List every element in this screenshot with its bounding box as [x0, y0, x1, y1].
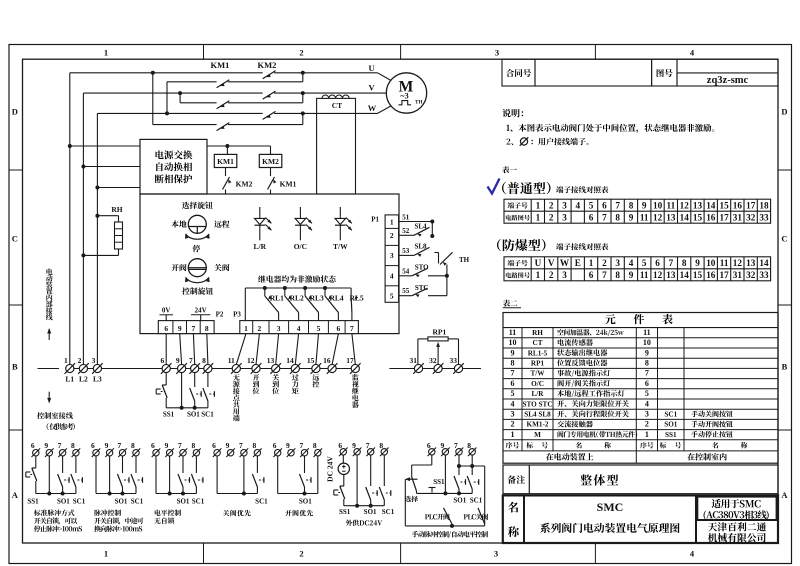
svg-text:1: 1 [536, 212, 541, 222]
svg-text:U: U [535, 258, 542, 268]
svg-text:13: 13 [666, 270, 676, 280]
svg-text:7: 7 [454, 441, 458, 450]
svg-text:4: 4 [297, 324, 301, 333]
svg-text:6: 6 [273, 441, 277, 450]
svg-text:SO1: SO1 [115, 498, 128, 506]
svg-text:CT: CT [332, 101, 342, 110]
svg-text:RL1: RL1 [270, 294, 284, 303]
svg-text:9: 9 [511, 348, 515, 357]
svg-text:15: 15 [720, 200, 730, 210]
svg-text:3: 3 [562, 200, 567, 210]
svg-text:17: 17 [720, 270, 730, 280]
svg-text:SS1: SS1 [433, 478, 445, 486]
svg-text:51: 51 [402, 213, 410, 221]
svg-text:3: 3 [562, 270, 567, 280]
svg-text:6: 6 [151, 441, 155, 450]
svg-text:SC1: SC1 [255, 498, 268, 506]
svg-text:6: 6 [645, 379, 649, 388]
svg-text:RL3: RL3 [310, 294, 324, 303]
svg-text:8: 8 [467, 441, 471, 450]
svg-text:12: 12 [733, 258, 743, 268]
svg-text:1: 1 [645, 430, 649, 439]
svg-text:7: 7 [239, 441, 243, 450]
svg-text:zq3z-smc: zq3z-smc [707, 75, 749, 86]
svg-text:SMC: SMC [597, 500, 624, 514]
svg-text:33: 33 [759, 270, 769, 280]
svg-text:SC1: SC1 [201, 411, 214, 419]
svg-text:3: 3 [92, 356, 96, 365]
svg-text:2: 2 [258, 324, 262, 333]
svg-text:32: 32 [746, 212, 756, 222]
svg-text:6: 6 [511, 379, 515, 388]
svg-text:7: 7 [645, 369, 649, 378]
svg-text:O/C: O/C [294, 242, 307, 251]
svg-text:8: 8 [131, 441, 135, 450]
svg-text:STO: STO [415, 264, 429, 272]
svg-text:V: V [369, 83, 376, 93]
svg-text:6: 6 [589, 270, 594, 280]
svg-text:12: 12 [653, 270, 663, 280]
svg-text:3: 3 [645, 410, 649, 419]
svg-text:W: W [368, 103, 377, 113]
svg-text:P2: P2 [216, 311, 224, 319]
svg-text:DC 24V: DC 24V [326, 456, 335, 482]
svg-text:9: 9 [645, 348, 649, 357]
svg-text:W: W [560, 258, 570, 268]
svg-text:SO1: SO1 [177, 498, 190, 506]
svg-text:9: 9 [629, 270, 634, 280]
svg-text:1: 1 [104, 549, 108, 559]
svg-text:52: 52 [402, 227, 410, 235]
svg-text:SS1: SS1 [339, 508, 351, 516]
svg-text:RL4: RL4 [330, 294, 344, 303]
svg-text:SO1: SO1 [364, 508, 377, 516]
svg-text:2: 2 [549, 200, 554, 210]
svg-text:18: 18 [759, 200, 769, 210]
svg-text:1: 1 [104, 48, 108, 58]
svg-text:RL2: RL2 [290, 294, 304, 303]
svg-text:7: 7 [192, 324, 196, 333]
svg-text:KM2: KM2 [258, 60, 277, 70]
svg-text:0V: 0V [162, 307, 171, 315]
svg-text:16: 16 [323, 356, 331, 365]
svg-text:B: B [782, 362, 788, 372]
svg-text:8: 8 [71, 441, 75, 450]
svg-text:D: D [781, 107, 787, 117]
svg-text:7: 7 [669, 258, 674, 268]
svg-text:6: 6 [212, 441, 216, 450]
svg-text:6: 6 [589, 212, 594, 222]
svg-text:11: 11 [640, 270, 649, 280]
svg-text:15: 15 [693, 270, 703, 280]
svg-text:12: 12 [653, 212, 663, 222]
svg-text:KM1: KM1 [280, 180, 297, 189]
svg-text:RL5: RL5 [350, 294, 364, 303]
svg-text:2: 2 [390, 231, 394, 240]
svg-text:2: 2 [299, 48, 303, 58]
svg-text:6: 6 [338, 441, 342, 450]
svg-text:STO STC: STO STC [522, 400, 552, 408]
svg-text:8: 8 [191, 441, 195, 450]
svg-text:24V: 24V [195, 307, 207, 315]
svg-text:8: 8 [511, 359, 515, 368]
svg-text:U: U [369, 63, 375, 73]
svg-text:6: 6 [427, 441, 431, 450]
svg-text:SC1: SC1 [73, 498, 86, 506]
svg-text:SO1: SO1 [664, 421, 678, 429]
svg-text:1: 1 [536, 200, 541, 210]
svg-text:P3: P3 [233, 311, 241, 319]
svg-text:3: 3 [615, 258, 620, 268]
svg-text:13: 13 [666, 212, 676, 222]
svg-text:L/R: L/R [254, 242, 267, 251]
svg-text:SC1: SC1 [664, 411, 677, 419]
svg-text:17: 17 [346, 356, 354, 365]
svg-text:17: 17 [746, 200, 756, 210]
svg-text:7: 7 [178, 441, 182, 450]
svg-text:16: 16 [733, 200, 743, 210]
svg-text:L2: L2 [79, 375, 88, 384]
svg-text:16: 16 [706, 212, 716, 222]
svg-text:8: 8 [615, 212, 620, 222]
svg-text:2: 2 [645, 420, 649, 429]
svg-text:31: 31 [733, 270, 743, 280]
svg-text:8: 8 [202, 356, 206, 365]
svg-text:SC1: SC1 [470, 496, 483, 504]
svg-text:11: 11 [228, 356, 235, 365]
svg-text:SO1: SO1 [299, 498, 312, 506]
svg-text:13: 13 [267, 356, 275, 365]
svg-text:1: 1 [244, 324, 248, 333]
svg-text:9: 9 [352, 441, 356, 450]
svg-text:1: 1 [64, 356, 68, 365]
svg-text:32: 32 [429, 356, 437, 365]
svg-text:5: 5 [642, 258, 647, 268]
svg-text:RH: RH [532, 329, 543, 337]
svg-text:6: 6 [337, 324, 341, 333]
svg-text:5: 5 [390, 292, 394, 301]
svg-text:3: 3 [511, 410, 515, 419]
svg-text:A: A [781, 490, 788, 500]
svg-text:V: V [548, 258, 555, 268]
svg-text:C: C [781, 234, 787, 244]
svg-text:1: 1 [589, 258, 594, 268]
svg-text:10: 10 [643, 338, 651, 347]
svg-text:E: E [575, 258, 581, 268]
svg-text:7: 7 [615, 200, 620, 210]
svg-text:9: 9 [176, 356, 180, 365]
svg-text:SO1: SO1 [453, 496, 466, 504]
svg-text:4: 4 [511, 399, 515, 408]
svg-text:KM1: KM1 [211, 60, 230, 70]
svg-text:8: 8 [615, 270, 620, 280]
svg-text:SC1: SC1 [382, 508, 395, 516]
svg-text:9: 9 [642, 200, 647, 210]
svg-text:32: 32 [746, 270, 756, 280]
svg-text:9: 9 [178, 324, 182, 333]
svg-text:6: 6 [655, 258, 660, 268]
svg-text:3: 3 [390, 251, 394, 260]
svg-text:6: 6 [160, 356, 164, 365]
svg-text:P1: P1 [371, 216, 379, 224]
svg-text:11: 11 [509, 328, 517, 337]
svg-text:10: 10 [706, 258, 716, 268]
svg-text:33: 33 [759, 212, 769, 222]
svg-text:TH: TH [415, 100, 423, 106]
svg-text:SS1: SS1 [665, 431, 677, 439]
svg-text:1: 1 [511, 430, 515, 439]
svg-text:14: 14 [286, 356, 294, 365]
svg-text:SO1: SO1 [187, 411, 200, 419]
svg-text:KM1: KM1 [217, 157, 234, 166]
svg-text:2: 2 [602, 258, 607, 268]
svg-text:4: 4 [629, 258, 634, 268]
svg-text:8: 8 [682, 258, 687, 268]
svg-text:6: 6 [164, 324, 168, 333]
svg-text:12: 12 [680, 200, 690, 210]
svg-text:9: 9 [105, 441, 109, 450]
svg-text:8: 8 [313, 441, 317, 450]
svg-text:5: 5 [511, 389, 515, 398]
svg-text:13: 13 [746, 258, 756, 268]
svg-text:1: 1 [536, 270, 541, 280]
svg-text:2: 2 [299, 549, 303, 559]
svg-text:14: 14 [680, 212, 690, 222]
svg-text:5: 5 [645, 389, 649, 398]
svg-text:4: 4 [390, 272, 394, 281]
svg-text:15: 15 [307, 356, 315, 365]
svg-text:7: 7 [602, 212, 607, 222]
svg-text:3: 3 [495, 48, 499, 58]
svg-text:2: 2 [78, 356, 82, 365]
svg-text:2: 2 [549, 270, 554, 280]
svg-text:8: 8 [205, 324, 209, 333]
svg-text:11: 11 [640, 212, 649, 222]
svg-text:T/W: T/W [531, 370, 546, 378]
svg-text:KM2: KM2 [236, 180, 253, 189]
svg-text:6: 6 [91, 441, 95, 450]
svg-text:~3: ~3 [400, 92, 408, 101]
svg-text:9: 9 [165, 441, 169, 450]
svg-text:A: A [12, 490, 19, 500]
svg-text:8: 8 [379, 441, 383, 450]
svg-text:2: 2 [511, 420, 515, 429]
svg-text:14: 14 [706, 200, 716, 210]
svg-text:5: 5 [317, 324, 321, 333]
svg-text:12: 12 [247, 356, 255, 365]
svg-text:SO1: SO1 [57, 498, 70, 506]
svg-text:3: 3 [494, 549, 498, 559]
svg-text:4: 4 [576, 200, 581, 210]
svg-text:14: 14 [759, 258, 769, 268]
svg-text:7: 7 [511, 369, 515, 378]
svg-text:L3: L3 [93, 375, 102, 384]
svg-text:6: 6 [31, 441, 35, 450]
svg-text:7: 7 [118, 441, 122, 450]
svg-text:KM2: KM2 [262, 157, 279, 166]
svg-text:15: 15 [693, 212, 703, 222]
svg-text:3: 3 [562, 212, 567, 222]
svg-text:RH: RH [111, 205, 122, 214]
svg-text:SS1: SS1 [27, 498, 39, 506]
svg-text:CT: CT [533, 339, 543, 347]
svg-text:SS1: SS1 [163, 411, 175, 419]
svg-text:7: 7 [350, 324, 354, 333]
svg-text:7: 7 [58, 441, 62, 450]
svg-text:16: 16 [706, 270, 716, 280]
svg-text:31: 31 [410, 356, 418, 365]
svg-text:O/C: O/C [531, 380, 544, 388]
svg-text:T/W: T/W [333, 242, 348, 251]
svg-text:14: 14 [680, 270, 690, 280]
svg-text:7: 7 [189, 356, 193, 365]
svg-text:M: M [534, 431, 541, 439]
svg-text:9: 9 [44, 441, 48, 450]
svg-text:31: 31 [733, 212, 743, 222]
svg-text:55: 55 [402, 287, 410, 295]
svg-text:6: 6 [602, 200, 607, 210]
svg-text:RP1: RP1 [531, 360, 545, 368]
svg-text:7: 7 [300, 441, 304, 450]
svg-text:8: 8 [629, 200, 634, 210]
svg-text:L/R: L/R [532, 390, 545, 398]
svg-text:13: 13 [693, 200, 703, 210]
svg-text:54: 54 [402, 267, 410, 275]
svg-text:RL1-5: RL1-5 [528, 349, 548, 357]
svg-text:1: 1 [390, 217, 394, 226]
svg-text:9: 9 [286, 441, 290, 450]
svg-text:C: C [12, 234, 18, 244]
svg-text:11: 11 [667, 200, 676, 210]
svg-text:11: 11 [720, 258, 729, 268]
svg-text:9: 9 [629, 212, 634, 222]
svg-text:TH: TH [459, 256, 470, 264]
svg-text:4: 4 [645, 399, 649, 408]
svg-text:SL4 SL8: SL4 SL8 [524, 411, 551, 419]
svg-text:8: 8 [252, 441, 256, 450]
svg-text:53: 53 [402, 247, 410, 255]
svg-text:17: 17 [720, 212, 730, 222]
svg-text:33: 33 [450, 356, 458, 365]
svg-text:2: 2 [549, 212, 554, 222]
svg-text:7: 7 [602, 270, 607, 280]
svg-text:L1: L1 [65, 375, 74, 384]
svg-text:9: 9 [440, 441, 444, 450]
svg-text:B: B [12, 362, 18, 372]
svg-text:D: D [12, 107, 18, 117]
svg-text:9: 9 [226, 441, 230, 450]
svg-text:KM1-2: KM1-2 [527, 421, 549, 429]
svg-text:8: 8 [645, 359, 649, 368]
svg-text:10: 10 [653, 200, 663, 210]
svg-text:10: 10 [509, 338, 517, 347]
svg-text:SC1: SC1 [192, 498, 205, 506]
svg-text:7: 7 [366, 441, 370, 450]
svg-text:11: 11 [643, 328, 651, 337]
svg-text:RP1: RP1 [433, 328, 447, 337]
svg-text:9: 9 [695, 258, 700, 268]
svg-text:SC1: SC1 [131, 498, 144, 506]
svg-text:5: 5 [589, 200, 594, 210]
svg-text:3: 3 [277, 324, 281, 333]
